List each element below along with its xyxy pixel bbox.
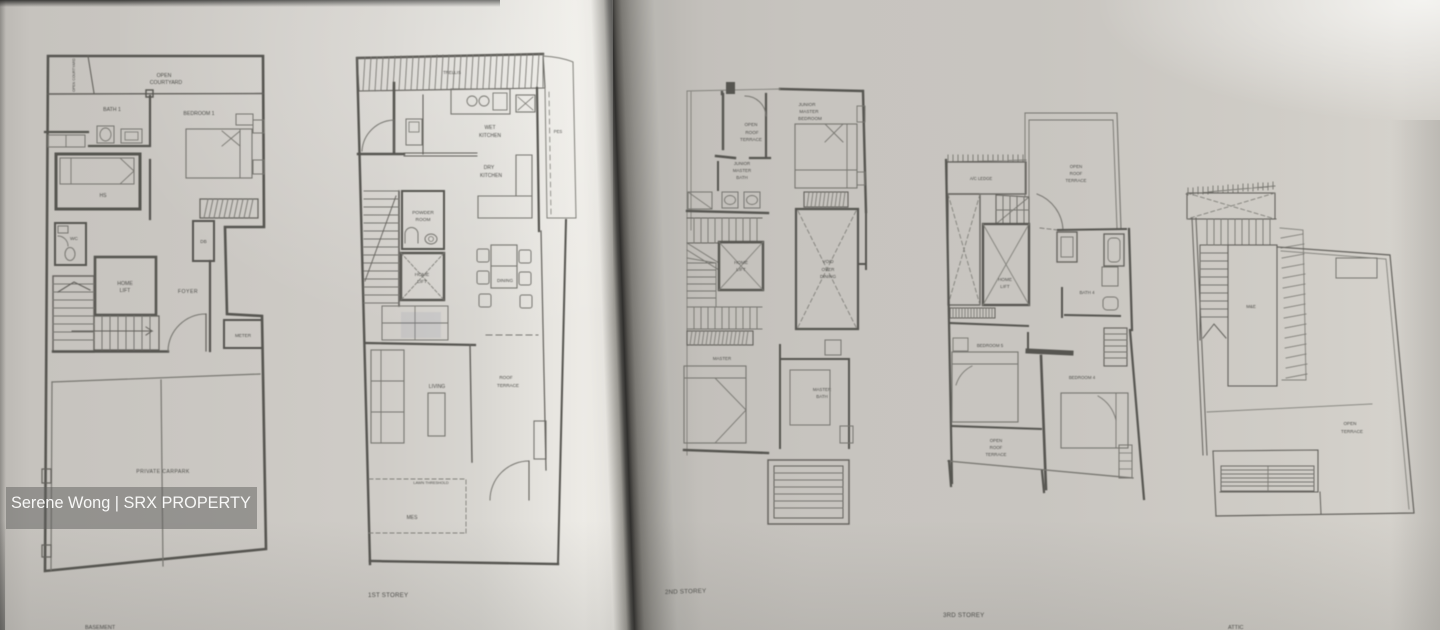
svg-text:BATH 1: BATH 1	[103, 107, 121, 113]
svg-text:LIFT: LIFT	[417, 279, 427, 285]
svg-text:ATTIC: ATTIC	[1228, 625, 1244, 630]
svg-text:MASTER: MASTER	[799, 109, 819, 114]
svg-text:JUNIOR: JUNIOR	[734, 161, 750, 166]
svg-text:OPEN COURTYARD: OPEN COURTYARD	[72, 58, 76, 92]
svg-text:LIVING: LIVING	[429, 384, 446, 390]
svg-text:ROOM: ROOM	[416, 217, 431, 223]
svg-text:VOID: VOID	[822, 259, 834, 264]
svg-text:2ND STOREY: 2ND STOREY	[665, 588, 707, 596]
svg-text:BEDROOM: BEDROOM	[798, 116, 822, 121]
svg-text:HS: HS	[100, 193, 108, 199]
svg-text:HOME: HOME	[998, 277, 1012, 282]
svg-text:TERRACE: TERRACE	[740, 137, 762, 142]
svg-text:ROOF: ROOF	[499, 375, 512, 380]
svg-text:TERRACE: TERRACE	[986, 452, 1007, 457]
svg-text:POWDER: POWDER	[412, 210, 434, 216]
svg-text:OVER: OVER	[821, 267, 835, 272]
svg-text:DRY: DRY	[484, 165, 495, 171]
svg-text:BATH: BATH	[736, 175, 747, 180]
svg-text:TERRACE: TERRACE	[497, 383, 519, 388]
svg-text:OPEN: OPEN	[1343, 421, 1356, 426]
svg-text:BATH: BATH	[816, 394, 827, 399]
svg-text:BEDROOM 1: BEDROOM 1	[183, 111, 214, 117]
svg-text:MASTER: MASTER	[713, 356, 731, 361]
svg-text:OPEN: OPEN	[744, 122, 757, 127]
svg-text:3RD STOREY: 3RD STOREY	[943, 612, 984, 619]
svg-text:DINING: DINING	[497, 278, 514, 283]
svg-text:HOME: HOME	[117, 281, 133, 287]
svg-text:FOYER: FOYER	[178, 289, 198, 295]
svg-text:TRELLIS: TRELLIS	[443, 70, 461, 75]
svg-text:HOME: HOME	[415, 272, 429, 278]
svg-text:DB: DB	[200, 239, 206, 244]
svg-text:LIFT: LIFT	[120, 288, 131, 294]
svg-text:KITCHEN: KITCHEN	[479, 133, 501, 139]
svg-text:OPEN: OPEN	[990, 438, 1002, 443]
svg-text:BASEMENT: BASEMENT	[85, 625, 116, 630]
svg-text:ROOF: ROOF	[745, 130, 758, 135]
svg-text:TERRACE: TERRACE	[1066, 178, 1087, 183]
svg-text:PRIVATE CARPARK: PRIVATE CARPARK	[136, 469, 190, 475]
svg-text:ROOF: ROOF	[1070, 171, 1083, 176]
svg-text:KITCHEN: KITCHEN	[480, 173, 502, 179]
svg-text:A/C LEDGE: A/C LEDGE	[970, 176, 993, 181]
svg-text:BATH 4: BATH 4	[1079, 290, 1095, 295]
svg-text:OPEN: OPEN	[157, 73, 172, 79]
svg-text:LIFT: LIFT	[736, 267, 746, 272]
svg-text:PES: PES	[554, 129, 563, 134]
svg-text:WET: WET	[484, 125, 495, 131]
svg-text:DINING: DINING	[820, 274, 837, 279]
svg-text:BEDROOM 4: BEDROOM 4	[1069, 375, 1096, 380]
svg-text:HOME: HOME	[734, 260, 748, 265]
svg-text:TERRACE: TERRACE	[1341, 429, 1363, 434]
svg-text:WC: WC	[70, 236, 79, 242]
svg-text:BEDROOM 5: BEDROOM 5	[977, 343, 1004, 348]
svg-text:M&E: M&E	[1246, 304, 1256, 309]
svg-text:JUNIOR: JUNIOR	[798, 102, 816, 107]
svg-text:MASTER: MASTER	[813, 387, 831, 392]
svg-text:LIFT: LIFT	[1000, 284, 1010, 289]
svg-text:OPEN: OPEN	[1070, 164, 1082, 169]
svg-text:COURTYARD: COURTYARD	[150, 80, 183, 86]
svg-text:1ST STOREY: 1ST STOREY	[368, 592, 408, 599]
svg-text:ROOF: ROOF	[990, 445, 1003, 450]
svg-text:LAWN THRESHOLD: LAWN THRESHOLD	[413, 481, 448, 485]
svg-text:METER: METER	[235, 333, 252, 338]
svg-text:MASTER: MASTER	[733, 168, 751, 173]
